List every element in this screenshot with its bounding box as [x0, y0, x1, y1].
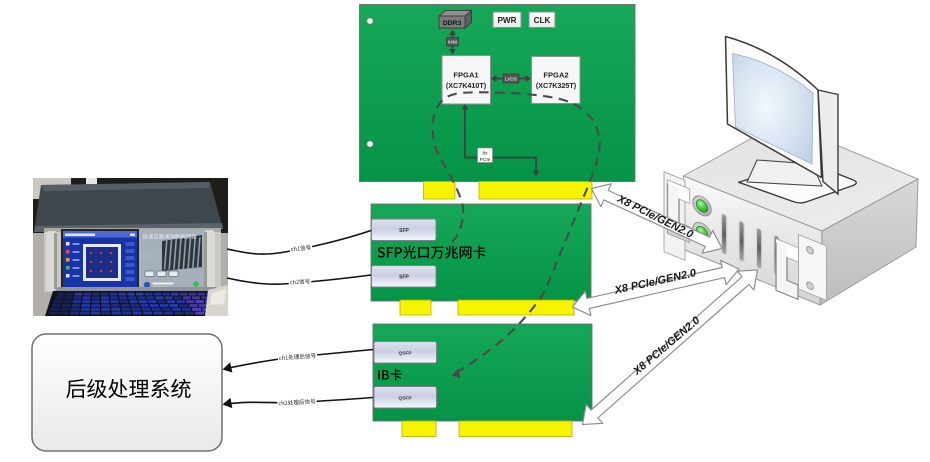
svg-text:FPGA2: FPGA2	[543, 71, 568, 80]
svg-text:(XC7K325T): (XC7K325T)	[536, 81, 577, 90]
svg-text:SFP: SFP	[399, 275, 409, 281]
svg-text:QSFP: QSFP	[398, 351, 412, 357]
svg-text:LVDS: LVDS	[505, 77, 517, 82]
svg-text:FPGA1: FPGA1	[453, 71, 479, 80]
svg-text:QSFP: QSFP	[398, 396, 412, 402]
svg-text:DDR3: DDR3	[443, 20, 462, 27]
svg-text:64bit: 64bit	[448, 40, 458, 45]
svg-text:X8 PCIe/GEN2.0: X8 PCIe/GEN2.0	[630, 314, 703, 378]
svg-text:8x: 8x	[482, 151, 488, 157]
svg-text:SFP: SFP	[399, 228, 409, 234]
svg-text:(XC7K410T): (XC7K410T)	[446, 81, 487, 90]
svg-text:PWR: PWR	[497, 16, 516, 25]
svg-text:PCIe: PCIe	[480, 157, 491, 163]
svg-text:CLK: CLK	[534, 16, 551, 25]
